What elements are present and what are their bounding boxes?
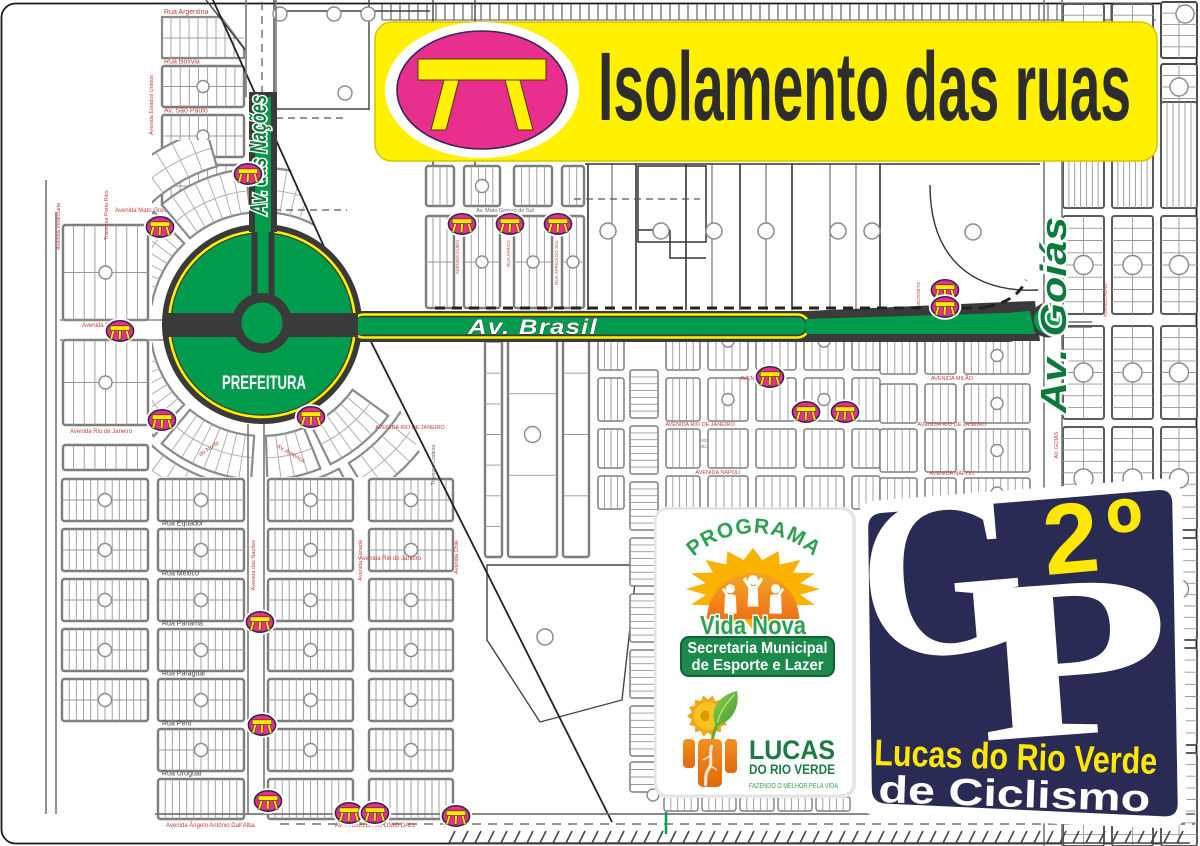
- svg-text:RUA ÁFRICA DO SUL: RUA ÁFRICA DO SUL: [553, 240, 559, 285]
- svg-text:RUA BOCAIÚVA: RUA BOCAIÚVA: [1102, 283, 1108, 316]
- svg-text:Rua Uruguai: Rua Uruguai: [162, 771, 202, 778]
- svg-text:Avenida Rio de Janeiro: Avenida Rio de Janeiro: [70, 429, 133, 435]
- svg-text:AVENIDA RIO DE JANEIRO: AVENIDA RIO DE JANEIRO: [665, 422, 735, 428]
- svg-text:Avenida Ângelo Antônio Dall'A: Avenida Ângelo Antônio Dall'Alba: [166, 822, 255, 829]
- svg-text:Avenida das Nações: Avenida das Nações: [251, 540, 257, 591]
- svg-text:DO RIO VERDE: DO RIO VERDE: [749, 762, 835, 777]
- svg-text:Rua Paraguai: Rua Paraguai: [162, 671, 205, 678]
- svg-text:AVENIDA MILÃO: AVENIDA MILÃO: [931, 375, 974, 382]
- svg-text:Rua Argentina: Rua Argentina: [164, 9, 208, 16]
- svg-text:PREFEITURA: PREFEITURA: [222, 373, 306, 394]
- svg-text:Rua México: Rua México: [162, 571, 199, 578]
- svg-text:Av. Goiás: Av. Goiás: [1033, 217, 1074, 414]
- svg-text:AV. GOIÁS: AV. GOIÁS: [1053, 431, 1060, 458]
- svg-text:Avenida Rio de Janeiro: Avenida Rio de Janeiro: [359, 556, 422, 562]
- svg-text:Avenida Chile: Avenida Chile: [454, 540, 460, 574]
- svg-text:Av. Brasil: Av. Brasil: [467, 316, 598, 339]
- svg-text:Travessa Costeira: Travessa Costeira: [431, 445, 437, 486]
- svg-text:Rua Bolívia: Rua Bolívia: [164, 59, 200, 66]
- svg-text:Vida Nova: Vida Nova: [700, 610, 806, 640]
- svg-text:Av. São Paulo: Av. São Paulo: [164, 108, 208, 115]
- svg-text:de Esporte e Lazer: de Esporte e Lazer: [692, 657, 824, 674]
- svg-text:LUCAS: LUCAS: [749, 735, 835, 765]
- svg-text:AVENIDA RIO DE JANEIRO: AVENIDA RIO DE JANEIRO: [375, 425, 445, 431]
- svg-text:2º: 2º: [1038, 476, 1157, 597]
- svg-text:Rua Panamá: Rua Panamá: [162, 621, 203, 628]
- svg-text:Secretaria Municipal: Secretaria Municipal: [688, 640, 828, 657]
- svg-text:Avenida Estados Unidos: Avenida Estados Unidos: [149, 75, 155, 135]
- svg-text:Avenida Venezuela: Avenida Venezuela: [56, 202, 62, 250]
- svg-text:Travessa Porto Rico: Travessa Porto Rico: [104, 190, 110, 240]
- svg-text:RUA ÁFRICA: RUA ÁFRICA: [505, 240, 511, 267]
- svg-text:Isolamento das ruas: Isolamento das ruas: [598, 32, 1131, 141]
- svg-text:AVENIDA NAPOLI: AVENIDA NAPOLI: [695, 470, 741, 476]
- svg-text:FAZENDO O MELHOR PELA VIDA: FAZENDO O MELHOR PELA VIDA: [749, 783, 838, 790]
- svg-text:Rua Equador: Rua Equador: [162, 521, 204, 528]
- svg-text:Rua Peru: Rua Peru: [162, 721, 192, 728]
- svg-text:Av. das Nações: Av. das Nações: [245, 95, 271, 216]
- svg-text:AVENIDA DUBAI: AVENIDA DUBAI: [455, 240, 460, 274]
- svg-text:AVENIDA RIO DE JANEIRO: AVENIDA RIO DE JANEIRO: [917, 422, 987, 428]
